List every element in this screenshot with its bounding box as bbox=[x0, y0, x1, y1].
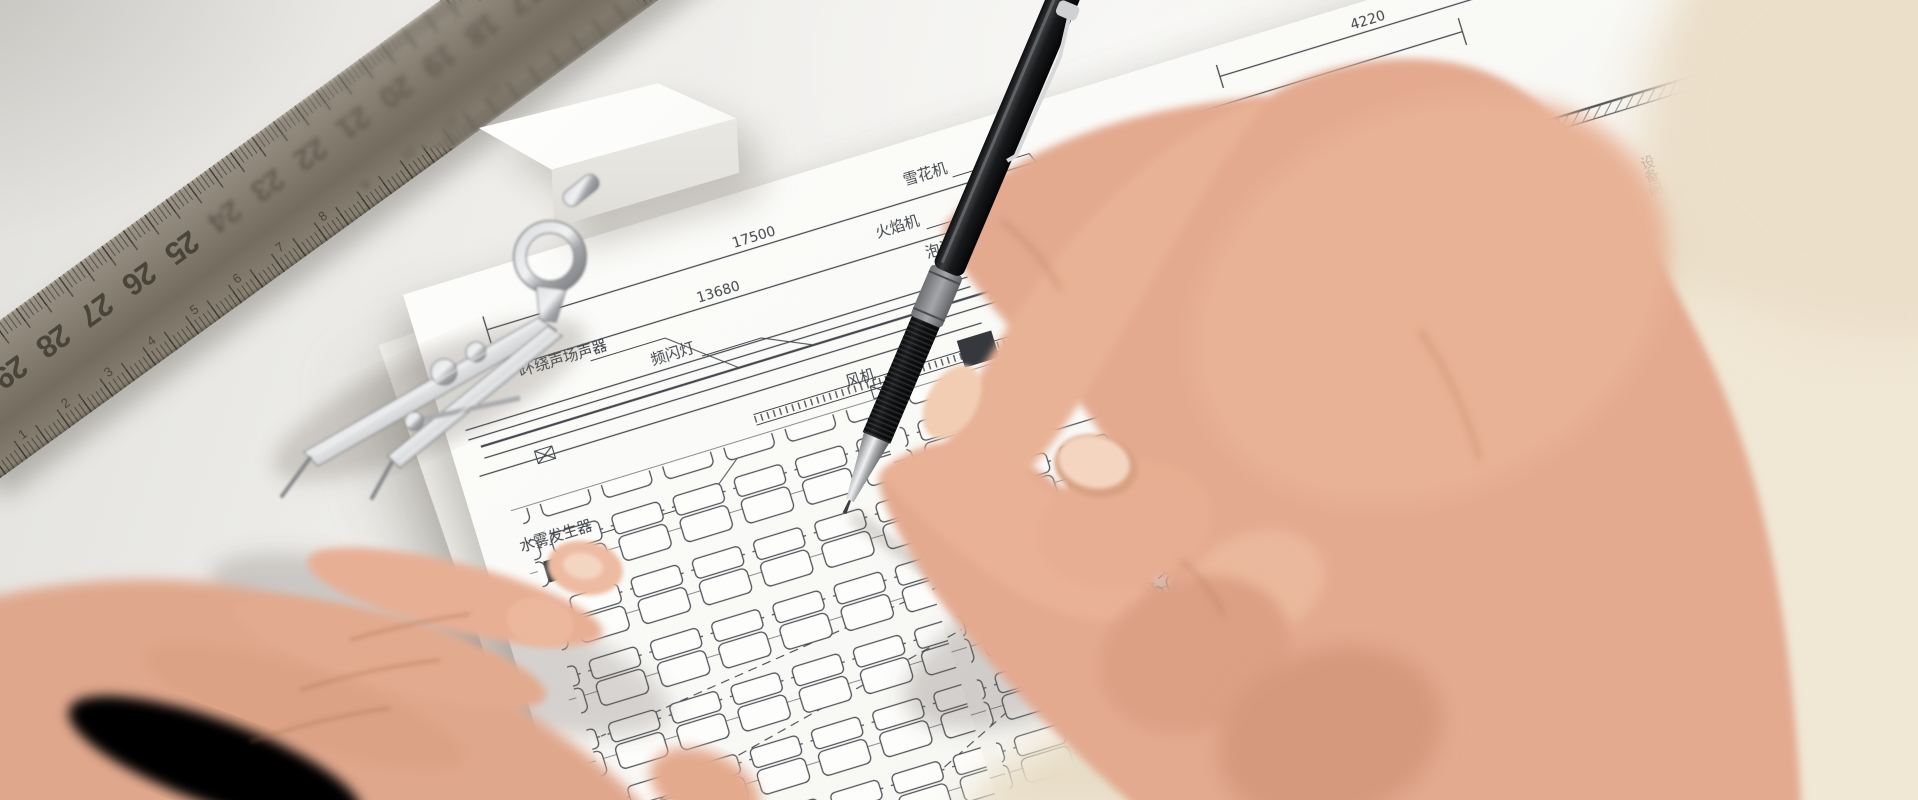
left-hand bbox=[0, 516, 773, 800]
hands-layer bbox=[0, 0, 1918, 800]
left-thumb-tip bbox=[637, 732, 772, 800]
photo-scene: 观 众 厅 环绕声场声器 频闪灯 水雾发生器 风机 雪花机 火焰机 泡泡机 主场… bbox=[0, 0, 1918, 800]
